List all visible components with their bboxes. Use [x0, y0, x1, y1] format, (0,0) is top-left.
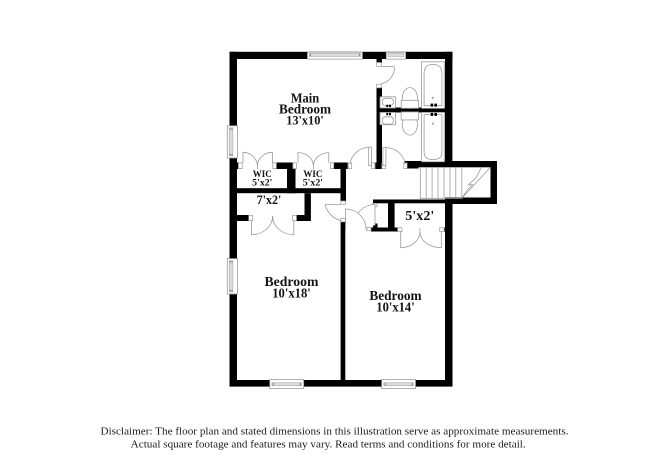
- svg-text:10'x18': 10'x18': [272, 286, 311, 301]
- svg-text:Actual square footage and feat: Actual square footage and features may v…: [131, 439, 526, 451]
- svg-text:7'x2': 7'x2': [257, 193, 282, 207]
- svg-text:10'x14': 10'x14': [376, 299, 414, 314]
- svg-text:Disclaimer: The floor plan and: Disclaimer: The floor plan and stated di…: [101, 425, 569, 437]
- svg-text:5'x2': 5'x2': [303, 178, 323, 189]
- svg-text:13'x10': 13'x10': [286, 113, 324, 128]
- svg-text:5'x2': 5'x2': [405, 208, 434, 223]
- svg-text:5'x2': 5'x2': [252, 178, 272, 189]
